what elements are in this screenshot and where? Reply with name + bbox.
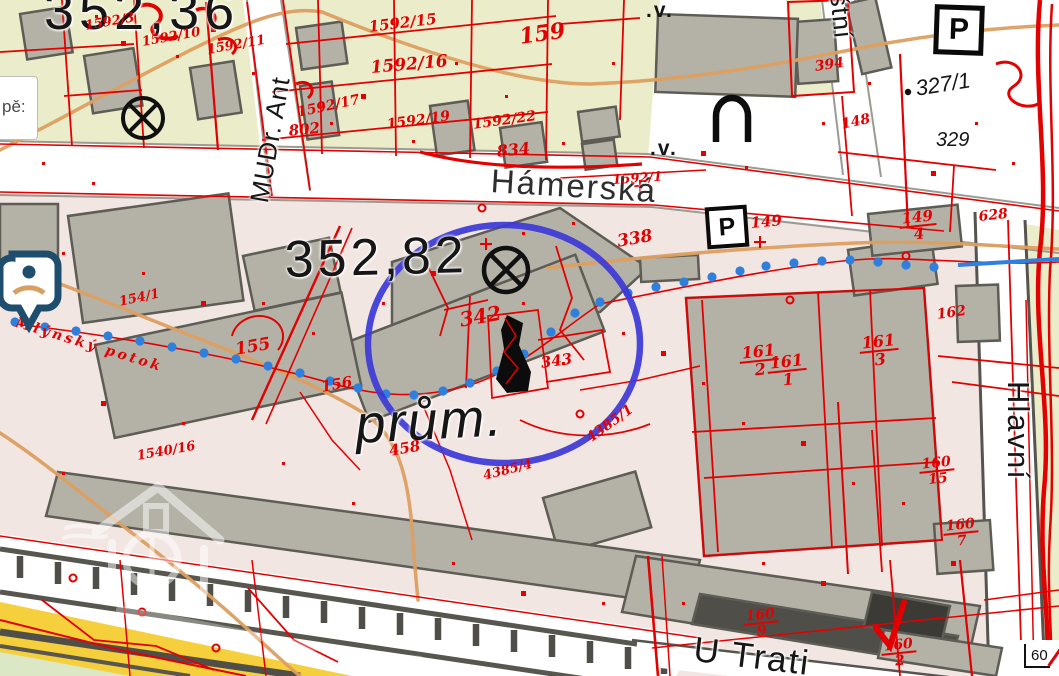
- elevation-label: 352,36: [44, 0, 239, 38]
- red-speckle-texture: [0, 0, 3, 3]
- vegetation-mark: .v.: [650, 138, 678, 159]
- scale-value: 60: [1024, 644, 1050, 668]
- map-pin-icon[interactable]: [0, 246, 62, 334]
- red-parcel-label: 1592/1: [612, 171, 663, 187]
- vegetation-mark: .v.: [646, 0, 674, 21]
- red-parcel-label: 394: [814, 56, 845, 74]
- street-label-stni: štní: [826, 0, 857, 40]
- parking-icon: P: [705, 205, 750, 250]
- area-label: prům.: [354, 390, 505, 452]
- red-parcel-label: 802: [288, 121, 321, 139]
- parking-icon: P: [933, 4, 985, 56]
- red-parcel-label: 159: [518, 20, 567, 48]
- red-fraction-label: 161 1: [766, 352, 809, 390]
- red-parcel-label: 834: [496, 141, 531, 160]
- scale-indicator: 60: [1020, 640, 1059, 676]
- red-fraction-label: 160 9: [742, 606, 780, 640]
- red-fraction-label: 160 2: [880, 636, 918, 670]
- tooltip-fragment: pě:: [0, 76, 38, 140]
- red-fraction-label: 160 15: [918, 454, 956, 488]
- survey-point-dot: [905, 89, 911, 95]
- red-fraction-label: 160 7: [942, 516, 980, 550]
- elevation-label: 352,82: [284, 229, 468, 286]
- red-fraction-label: 149 4: [898, 208, 938, 244]
- map-base-layer: [0, 0, 1059, 676]
- red-fraction-label: 161 3: [858, 332, 901, 370]
- red-parcel-label: 162: [936, 304, 967, 322]
- street-label-hlavni: Hlavní: [1003, 381, 1034, 481]
- map-canvas[interactable]: 352,36 352,82 prům. Hámerská U Trati Hla…: [0, 0, 1059, 676]
- red-parcel-label: 342: [458, 303, 503, 330]
- red-parcel-label: 628: [978, 207, 1009, 224]
- red-parcel-label: 149: [750, 213, 783, 231]
- red-parcel-label: 343: [540, 352, 573, 371]
- parcel-label-329: 329: [936, 130, 969, 150]
